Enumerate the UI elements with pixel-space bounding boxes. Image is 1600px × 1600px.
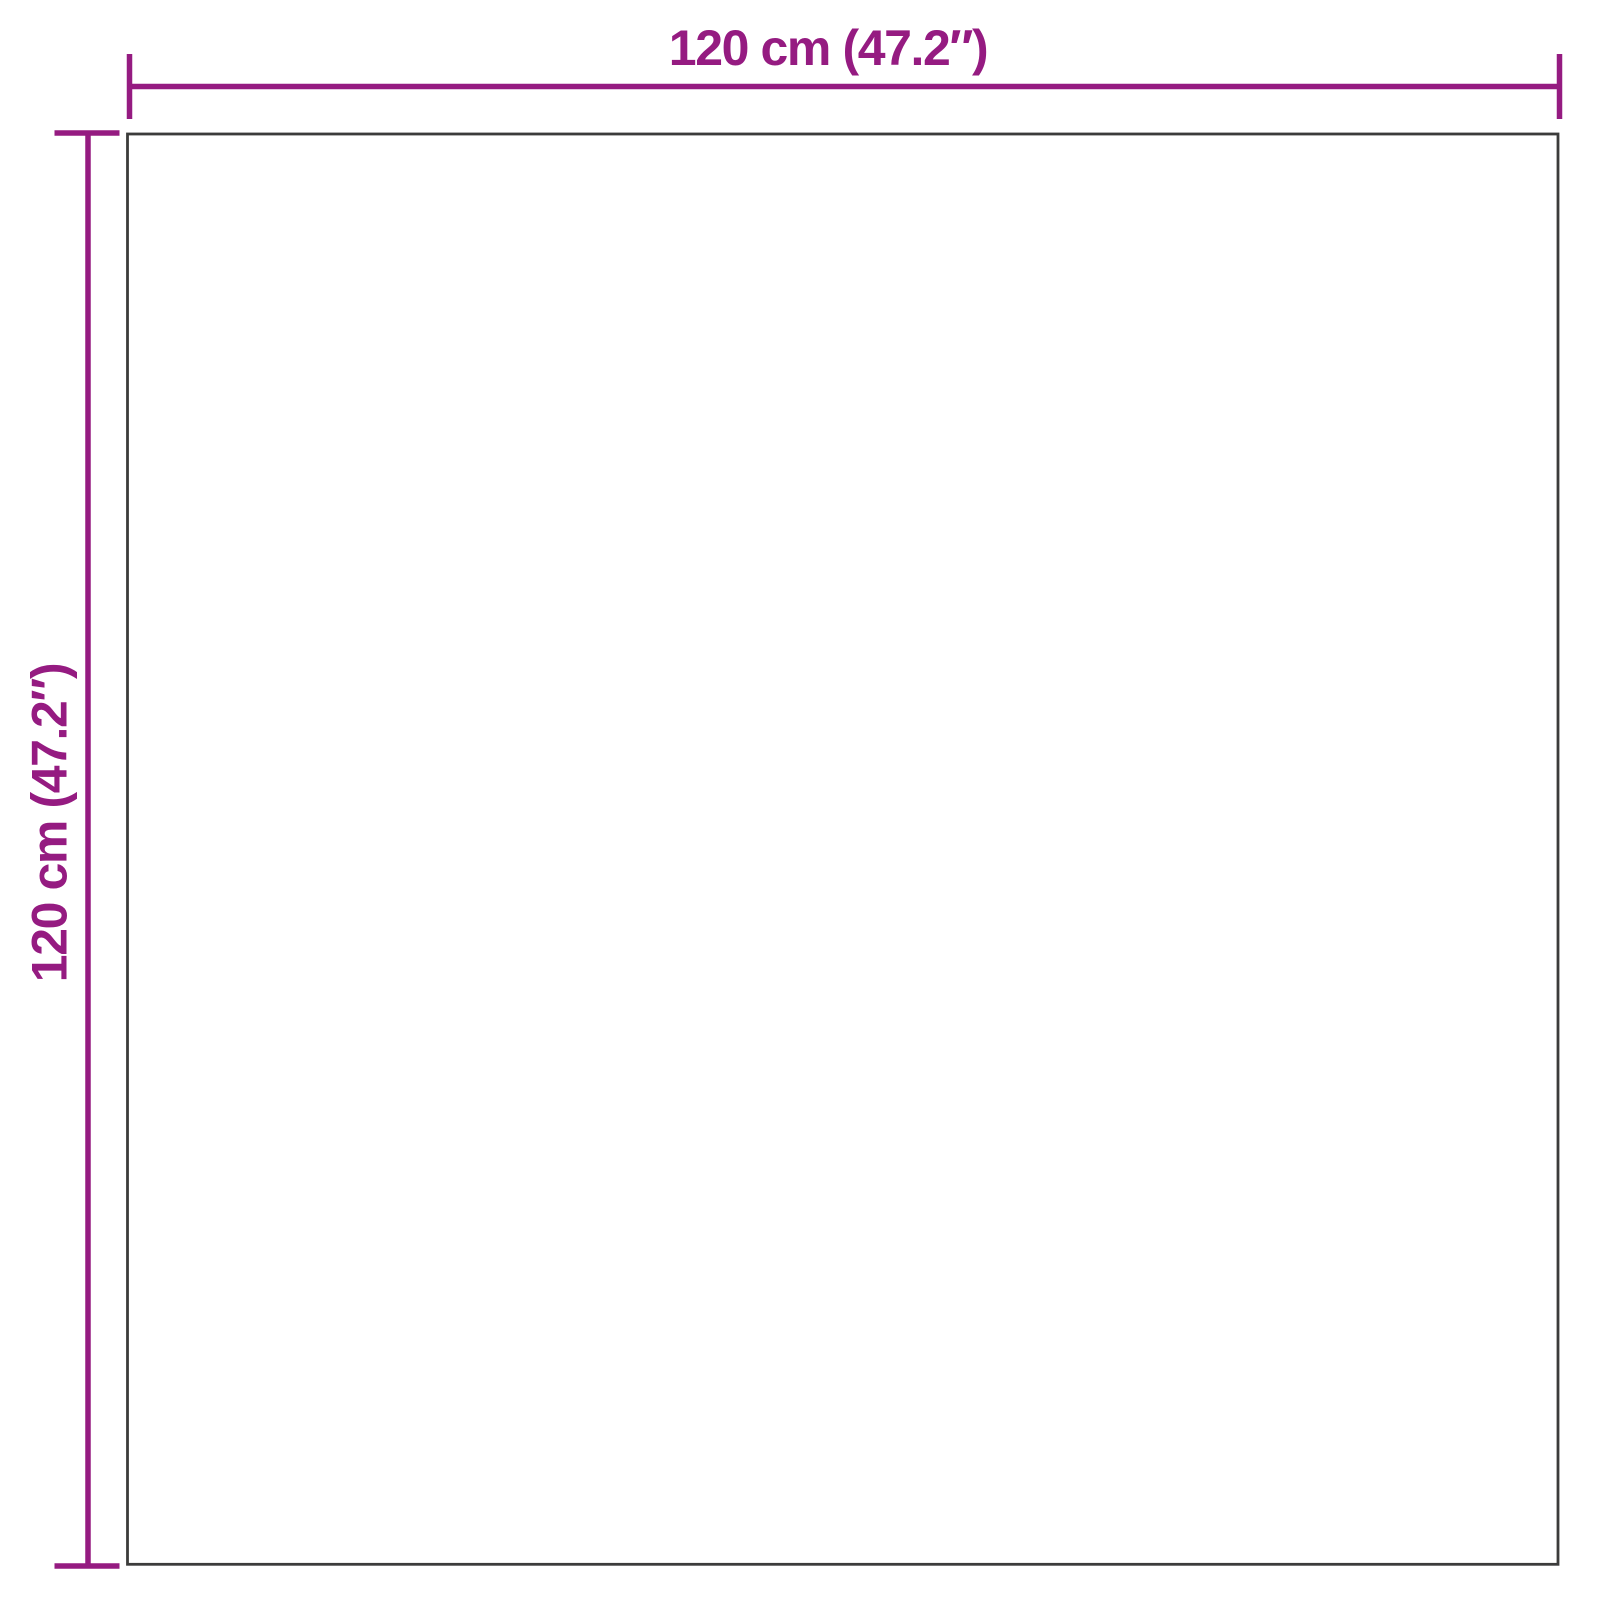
svg-text:120 cm (47.2″): 120 cm (47.2″)	[669, 20, 987, 76]
svg-text:120 cm (47.2″): 120 cm (47.2″)	[22, 664, 78, 982]
